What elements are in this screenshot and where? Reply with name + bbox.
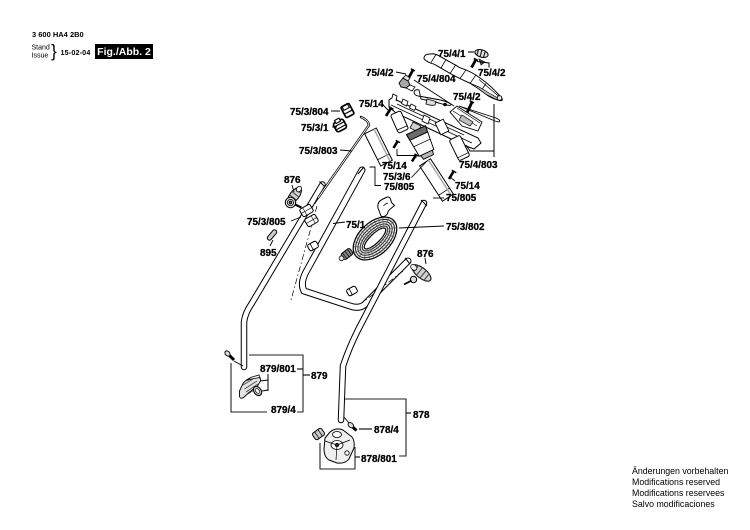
- svg-text:75/14: 75/14: [359, 99, 384, 110]
- svg-text:75/3/803: 75/3/803: [299, 146, 338, 157]
- svg-text:75/14: 75/14: [455, 181, 480, 192]
- svg-text:75/4/2: 75/4/2: [478, 68, 506, 79]
- svg-text:878/4: 878/4: [374, 425, 399, 436]
- svg-text:876: 876: [417, 249, 434, 260]
- svg-text:876: 876: [284, 175, 301, 186]
- svg-text:Modifications reserved: Modifications reserved: [632, 477, 720, 487]
- svg-text:75/1: 75/1: [346, 220, 366, 231]
- svg-text:75/3/805: 75/3/805: [247, 217, 286, 228]
- svg-text:75/805: 75/805: [384, 182, 415, 193]
- svg-text:75/4/1: 75/4/1: [438, 49, 466, 60]
- svg-text:878/801: 878/801: [361, 454, 397, 465]
- svg-text:75/3/804: 75/3/804: [290, 107, 329, 118]
- svg-text:75/4/2: 75/4/2: [366, 68, 394, 79]
- svg-text:75/805: 75/805: [446, 193, 477, 204]
- svg-text:Fig./Abb. 2: Fig./Abb. 2: [97, 46, 151, 58]
- svg-text:75/4/2: 75/4/2: [453, 92, 481, 103]
- svg-text:15-02-04: 15-02-04: [61, 48, 91, 57]
- svg-text:75/3/1: 75/3/1: [301, 123, 329, 134]
- svg-text:75/3/802: 75/3/802: [446, 222, 485, 233]
- svg-text:879/4: 879/4: [271, 405, 296, 416]
- svg-text:Salvo modificaciones: Salvo modificaciones: [632, 499, 715, 509]
- svg-text:3 600 HA4 2B0: 3 600 HA4 2B0: [32, 30, 84, 39]
- svg-text:Issue: Issue: [32, 53, 49, 60]
- svg-text:879/801: 879/801: [260, 364, 296, 375]
- svg-text:879: 879: [311, 371, 328, 382]
- svg-text:}: }: [51, 41, 57, 61]
- svg-text:Änderungen vorbehalten: Änderungen vorbehalten: [632, 466, 728, 476]
- svg-text:878: 878: [413, 410, 430, 421]
- svg-text:75/4/804: 75/4/804: [417, 74, 456, 85]
- svg-text:Stand: Stand: [32, 45, 50, 52]
- svg-text:75/14: 75/14: [382, 161, 407, 172]
- svg-text:75/4/803: 75/4/803: [459, 160, 498, 171]
- svg-text:Modifications reservees: Modifications reservees: [632, 488, 725, 498]
- svg-text:895: 895: [260, 248, 277, 259]
